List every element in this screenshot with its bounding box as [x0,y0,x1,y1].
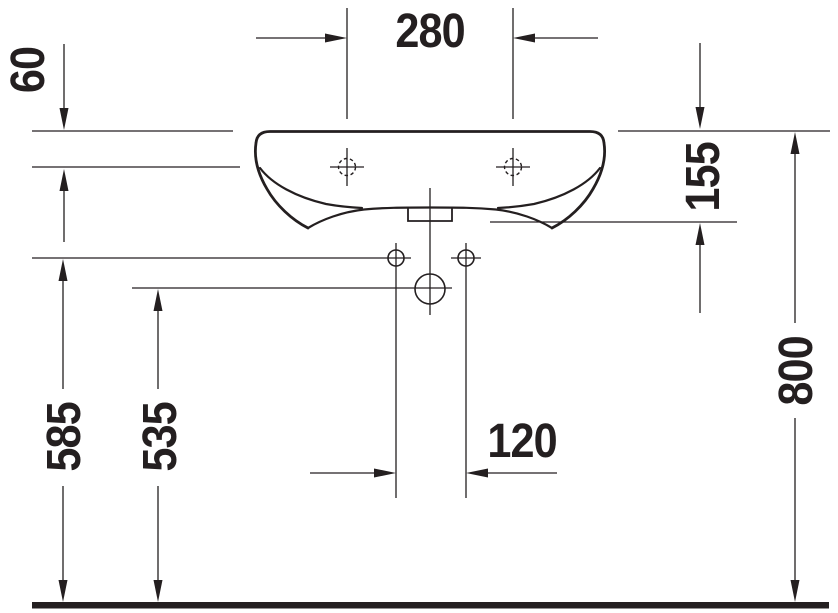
arrowhead-down-icon [154,580,163,602]
arrowhead-down-icon [791,580,800,602]
arrowhead-down-icon [60,108,69,130]
arrowhead-right-icon [325,34,347,43]
arrowhead-left-icon [513,34,535,43]
arrowhead-down-icon [696,107,705,129]
floor-line [32,602,829,609]
arrowhead-right-icon [374,469,396,478]
dim-label-800: 800 [769,336,823,405]
drawing-canvas: 280 60 155 800 [0,0,838,613]
ground-line [32,602,829,609]
arrowhead-up-icon [60,169,69,191]
dim-label-60: 60 [1,47,55,93]
dimension-155: 155 [490,43,737,313]
arrowhead-left-icon [466,469,488,478]
dim-label-535: 535 [133,402,187,472]
arrowhead-up-icon [791,132,800,154]
dimension-585: 585 [32,258,411,602]
dimension-535: 535 [132,288,452,602]
arrowhead-down-icon [59,580,68,602]
fixing-holes [388,243,481,498]
dimension-60: 60 [1,44,240,242]
arrowhead-up-icon [696,223,705,245]
dimension-280: 280 [256,4,598,119]
dim-label-280: 280 [395,4,464,58]
tap-holes [330,148,530,186]
dimension-120: 120 [310,414,557,478]
dim-label-155: 155 [676,142,730,212]
arrowhead-up-icon [59,259,68,281]
dim-label-120: 120 [487,414,556,468]
arrowhead-up-icon [154,289,163,311]
washbasin-technical-drawing: 280 60 155 800 [0,0,838,613]
dim-label-585: 585 [37,402,91,472]
